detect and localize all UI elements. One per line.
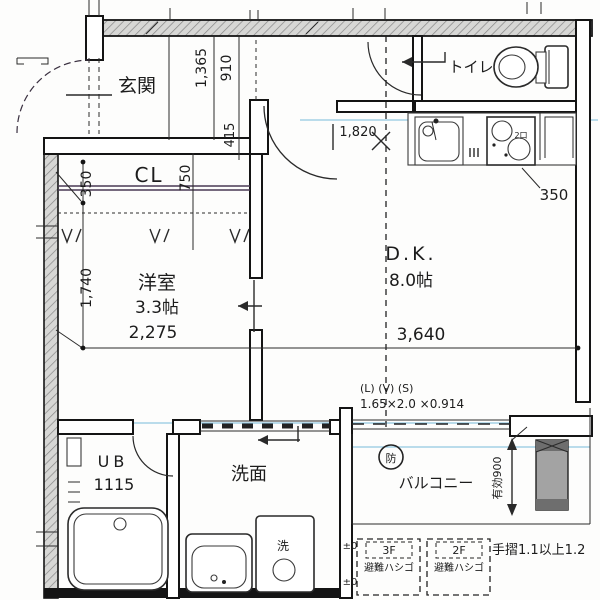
level-mark-upper: ±0 <box>343 541 358 552</box>
porch-step-mark <box>17 58 48 64</box>
lvs-values: 1.65×2.0 ×0.914 <box>360 397 464 411</box>
hall-wall <box>337 101 415 112</box>
dk-label: D.K. <box>385 243 436 265</box>
dk-size: 8.0帖 <box>389 271 433 291</box>
washer-mark: 洗 <box>277 539 289 553</box>
toilet-label: トイレ <box>448 58 493 76</box>
ladder-3f-label: 避難ハシゴ <box>364 561 414 574</box>
dim-1820: 1,820 <box>339 125 376 140</box>
balcony-label: バルコニー <box>399 474 474 492</box>
ladder-2f-label: 避難ハシゴ <box>434 561 484 574</box>
toilet-icon <box>494 46 568 88</box>
unit-bath-label: UB <box>98 452 129 471</box>
entrance-door-arc <box>17 60 90 133</box>
kitchen-sink-icon <box>415 117 463 165</box>
western-room-label: 洋室 <box>138 272 176 294</box>
dim-910: 910 <box>219 55 235 82</box>
genkan-dk-door-arc <box>264 106 337 179</box>
dim-effective-900: 有効900 <box>490 457 504 500</box>
handrail-note: 手摺1.1以上1.2 <box>492 543 585 558</box>
evacuation-hatch-icon <box>536 440 568 510</box>
bath-washroom-partition <box>167 434 179 598</box>
washroom-label: 洗面 <box>231 464 267 485</box>
genkan-right-wall <box>250 100 268 154</box>
balcony-side-wall <box>510 416 592 436</box>
level-mark-lower: ±0 <box>343 577 358 588</box>
floor-plan-sheet: 玄関 トイレ CL 洋室 3.3帖 2,275 D.K. 8.0帖 3,640 … <box>0 0 600 600</box>
fire-prevention-mark: 防 <box>386 451 397 465</box>
closet-door-marks <box>62 229 249 242</box>
dim-1740: 1,740 <box>79 268 95 308</box>
western-room-sliding-door <box>238 280 262 332</box>
washroom-top-wall-left <box>173 420 200 434</box>
dim-415: 415 <box>223 123 238 148</box>
washroom-right-wall <box>340 408 352 598</box>
closet-label: CL <box>134 163 163 187</box>
bath-top-wall <box>58 420 133 434</box>
dim-1365: 1,365 <box>194 48 210 88</box>
dim-750: 750 <box>178 165 194 192</box>
wall-ticks <box>17 0 541 546</box>
lvs-heading: (L) (V) (S) <box>360 382 413 395</box>
balcony-window <box>352 420 510 429</box>
washbasin-icon <box>186 534 252 592</box>
kitchen <box>408 113 576 165</box>
dim-350-closet: 350 <box>79 171 95 198</box>
western-room-size: 3.3帖 <box>135 298 179 318</box>
ladder-2f-floor: 2F <box>452 544 465 557</box>
toilet-bottom-wall <box>415 101 576 112</box>
exterior-wall-left <box>44 138 58 598</box>
stove-icon <box>487 117 535 165</box>
washing-machine-icon <box>256 516 314 592</box>
washroom-sliding-door <box>200 421 330 445</box>
unit-bath-size: 1115 <box>94 475 135 494</box>
dk-width-dim: 3,640 <box>397 325 446 345</box>
scan-artifact-lines <box>44 120 598 447</box>
western-room-right-wall-lower <box>250 330 262 420</box>
western-room-width-dim: 2,275 <box>129 323 178 343</box>
genkan-label: 玄関 <box>118 75 156 97</box>
dim-350-kitchen: 350 <box>540 186 569 204</box>
balcony-effective-arrow <box>507 427 527 516</box>
exterior-wall-right <box>576 20 590 402</box>
exterior-wall-top <box>95 20 592 36</box>
burner-count-mark: 2口 <box>514 131 527 140</box>
floor-plan-svg: 玄関 トイレ CL 洋室 3.3帖 2,275 D.K. 8.0帖 3,640 … <box>0 0 600 600</box>
western-room-right-wall-upper <box>250 154 262 278</box>
entrance-door <box>17 58 112 134</box>
ladder-3f-floor: 3F <box>382 544 395 557</box>
toilet-door <box>368 42 445 95</box>
entrance-pier-wall <box>86 16 103 60</box>
